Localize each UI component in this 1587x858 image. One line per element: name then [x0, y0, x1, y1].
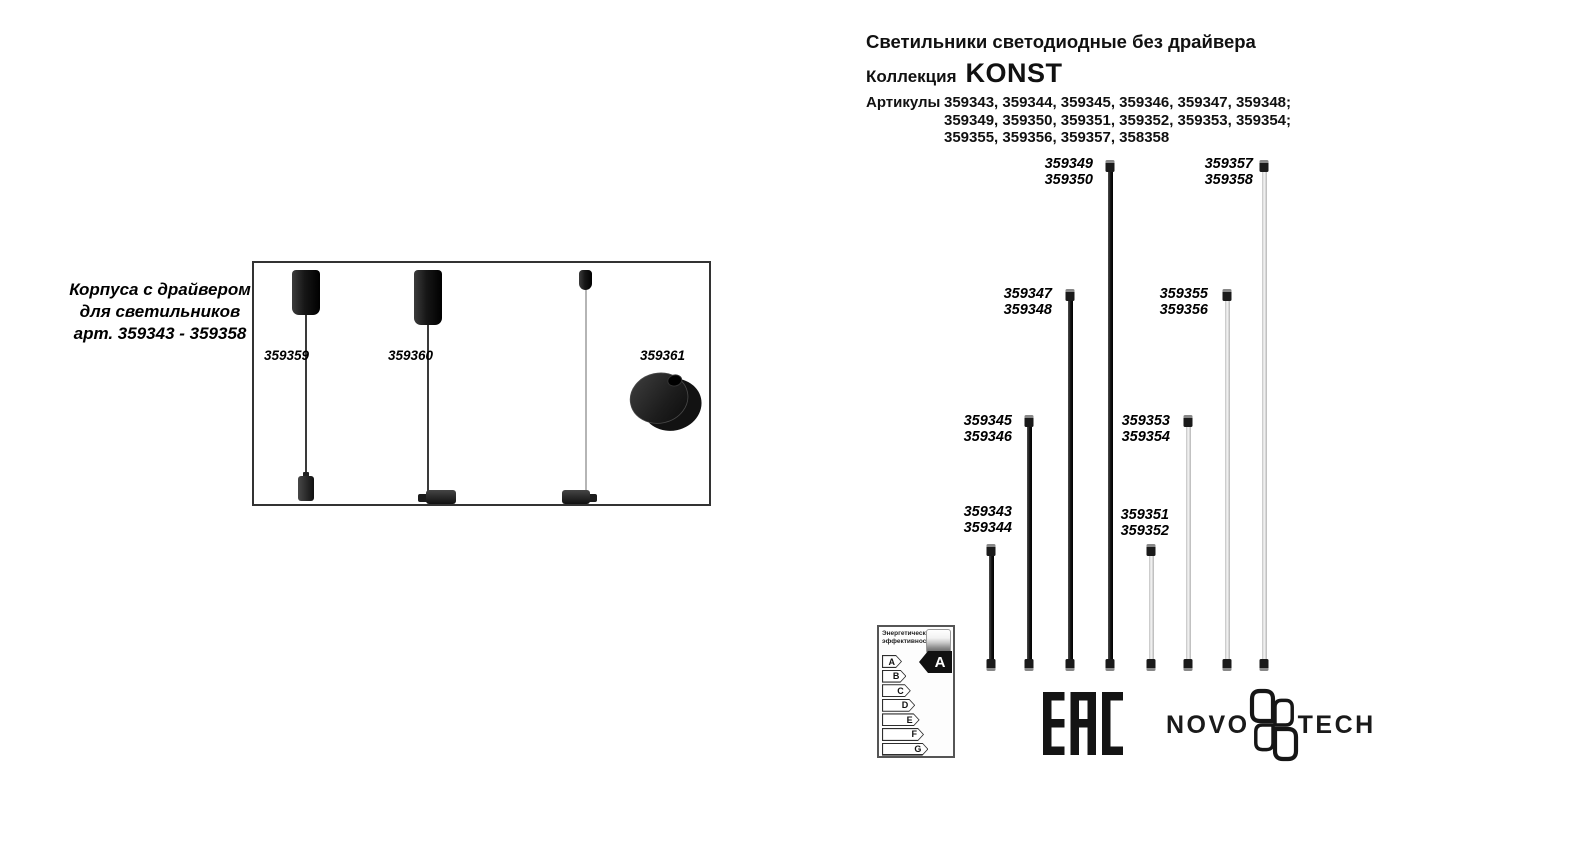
tube-end-cap	[1147, 544, 1156, 556]
led-tube-359353-359354	[1186, 416, 1191, 670]
eac-certification-mark-icon	[1043, 692, 1123, 755]
tube-article-number: 359348	[995, 303, 1052, 319]
tube-end-cap	[1066, 659, 1075, 671]
energy-class-letter: E	[907, 715, 913, 725]
tube-article-number: 359355	[1151, 287, 1208, 303]
energy-class-scale: ABCDEFG	[882, 655, 928, 757]
led-tube-359345-359346	[1027, 416, 1032, 670]
pendant-tip	[298, 476, 314, 501]
collection-label: Коллекция	[866, 67, 957, 87]
tube-article-number: 359343	[955, 505, 1012, 521]
tube-article-label: 359355359356	[1151, 287, 1208, 318]
caption-line: Корпуса с драйвером	[66, 279, 254, 301]
tube-article-number: 359349	[1036, 157, 1093, 173]
tube-article-number: 359353	[1113, 414, 1170, 430]
articles-list: 359343, 359344, 359345, 359346, 359347, …	[944, 94, 1291, 147]
energy-class-letter: C	[897, 686, 904, 696]
driver-housings-caption: Корпуса с драйвером для светильников арт…	[66, 279, 254, 345]
tube-article-number: 359344	[955, 521, 1012, 537]
tube-end-cap	[1066, 289, 1075, 301]
tube-article-label: 359343359344	[955, 505, 1012, 536]
tube-end-cap	[987, 544, 996, 556]
tube-end-cap	[1260, 659, 1269, 671]
suspension-fitting	[562, 490, 590, 504]
energy-gradient-chip-icon	[926, 629, 951, 654]
energy-class-e-arrow: E	[882, 713, 920, 726]
tube-end-cap	[1260, 160, 1269, 172]
header: Светильники светодиодные без драйвера Ко…	[866, 30, 1466, 147]
energy-class-a-arrow: A	[882, 655, 902, 668]
tube-end-cap	[1147, 659, 1156, 671]
novotech-logo: NOVO TECH	[1166, 687, 1376, 763]
led-tube-359351-359352	[1149, 545, 1154, 670]
tube-article-label: 359353359354	[1113, 414, 1170, 445]
energy-class-d-arrow: D	[882, 699, 915, 712]
tube-article-label: 359357359358	[1196, 157, 1253, 188]
led-tube-359357-359358	[1262, 161, 1267, 670]
product-datasheet-page: Корпуса с драйвером для светильников арт…	[0, 0, 1587, 858]
suspension-top-cap	[579, 270, 592, 290]
pendant-article-label: 359361	[640, 348, 685, 363]
tube-article-number: 359352	[1112, 524, 1169, 540]
tube-article-label: 359347359348	[995, 287, 1052, 318]
tube-end-cap	[1025, 415, 1034, 427]
page-title: Светильники светодиодные без драйвера	[866, 30, 1466, 54]
led-tube-359355-359356	[1225, 290, 1230, 670]
energy-class-g-arrow: G	[882, 743, 928, 756]
tube-article-number: 359346	[955, 430, 1012, 446]
articles-line: 359349, 359350, 359351, 359352, 359353, …	[944, 112, 1291, 130]
energy-class-b-arrow: B	[882, 670, 906, 683]
collection-row: Коллекция KONST	[866, 58, 1466, 89]
tube-end-cap	[1184, 659, 1193, 671]
tube-article-number: 359351	[1112, 508, 1169, 524]
energy-class-arrow-body	[883, 714, 918, 725]
articles-line: 359355, 359356, 359357, 358358	[944, 129, 1291, 147]
tube-article-number: 359354	[1113, 430, 1170, 446]
energy-class-letter: B	[893, 671, 900, 681]
collection-name: KONST	[966, 58, 1063, 89]
tube-end-cap	[1184, 415, 1193, 427]
tube-end-cap	[1106, 160, 1115, 172]
tube-end-cap	[1223, 289, 1232, 301]
articles-row: Артикулы 359343, 359344, 359345, 359346,…	[866, 94, 1466, 147]
caption-line: для светильников	[66, 301, 254, 323]
led-tube-359343-359344	[989, 545, 994, 670]
energy-class-letter: A	[889, 657, 896, 667]
tube-article-label: 359351359352	[1112, 508, 1169, 539]
tube-end-cap	[987, 659, 996, 671]
pendant-ceiling-fitting	[426, 490, 456, 504]
brand-word-left: NOVO	[1166, 711, 1250, 740]
caption-line: арт. 359343 - 359358	[66, 323, 254, 345]
tube-end-cap	[1025, 659, 1034, 671]
tube-article-label: 359349359350	[1036, 157, 1093, 188]
energy-class-f-arrow: F	[882, 728, 924, 741]
four-petal-clover-icon	[1245, 688, 1303, 762]
pendant-article-label: 359359	[264, 348, 309, 363]
tube-end-cap	[1106, 659, 1115, 671]
energy-class-arrow-body	[883, 700, 914, 711]
energy-class-letter: D	[902, 700, 909, 710]
energy-class-letter: G	[914, 744, 921, 754]
pendant-canister	[414, 270, 442, 325]
tube-article-number: 359356	[1151, 303, 1208, 319]
tube-article-label: 359345359346	[955, 414, 1012, 445]
driver-puck-359361-drawing	[626, 366, 704, 438]
energy-efficiency-label: Энергетическая эффективность ABCDEFG A	[877, 625, 955, 758]
pendant-article-label: 359360	[388, 348, 433, 363]
tube-end-cap	[1223, 659, 1232, 671]
articles-label: Артикулы	[866, 94, 944, 147]
tube-article-number: 359345	[955, 414, 1012, 430]
pendant-cord	[305, 315, 307, 476]
driver-housings-box: 359359 359360	[252, 261, 711, 506]
energy-class-c-arrow: C	[882, 684, 911, 697]
tube-article-number: 359357	[1196, 157, 1253, 173]
led-tube-359349-359350	[1108, 161, 1113, 670]
brand-word-right: TECH	[1298, 711, 1376, 740]
tube-article-number: 359350	[1036, 173, 1093, 189]
tube-article-number: 359358	[1196, 173, 1253, 189]
articles-line: 359343, 359344, 359345, 359346, 359347, …	[944, 94, 1291, 112]
suspension-cable	[585, 290, 587, 491]
led-tube-359347-359348	[1068, 290, 1073, 670]
tube-article-number: 359347	[995, 287, 1052, 303]
energy-class-letter: F	[912, 729, 918, 739]
pendant-canister	[292, 270, 320, 315]
